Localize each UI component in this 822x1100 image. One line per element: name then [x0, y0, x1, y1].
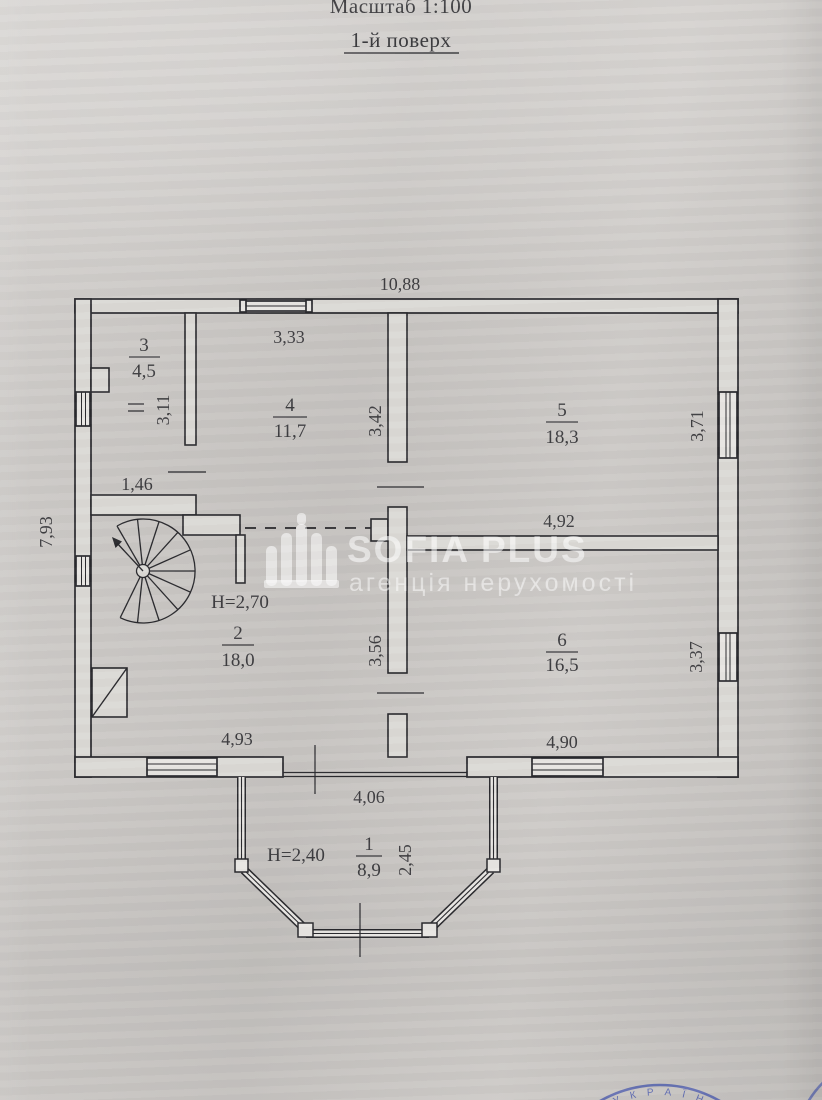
dim-room1-depth: 2,45 [395, 844, 415, 876]
room4-number: 4 [285, 395, 295, 416]
dim-room5-width: 4,92 [543, 511, 575, 531]
dim-room5-depth: 3,71 [687, 410, 707, 442]
window-left-room2 [76, 556, 90, 586]
room1-ceiling-height: H=2,40 [267, 845, 325, 866]
scanned-floor-plan-page: Масштаб 1:100 1-й поверх [0, 0, 822, 1100]
window-bottom-room6 [532, 758, 603, 776]
right-wall [718, 299, 738, 777]
wall-room3-bottom [91, 495, 196, 515]
dim-room3-width: 1,46 [121, 474, 153, 494]
dim-room4-depth: 3,42 [365, 405, 385, 437]
stove-icon [92, 668, 127, 717]
wall-stair-top [183, 515, 240, 535]
room1-area: 8,9 [357, 860, 381, 881]
room5-area: 18,3 [545, 427, 578, 448]
wall-stair-stub [236, 535, 245, 583]
dim-overall-height: 7,93 [36, 516, 56, 548]
stamp-seal-corner-icon [795, 1055, 822, 1100]
stamp-seal-icon: У К Р А Ї Н [540, 1085, 780, 1100]
window-top [240, 300, 312, 312]
wall-middle-lower [388, 714, 407, 757]
page-header: Масштаб 1:100 1-й поверх [330, 0, 473, 53]
dim-room4-width: 3,33 [273, 327, 305, 347]
wall-middle-upper [388, 313, 407, 462]
window-right-room5 [719, 392, 737, 458]
room2-ceiling-height: H=2,70 [211, 592, 269, 613]
scale-label: Масштаб 1:100 [330, 0, 473, 18]
room4-area: 11,7 [274, 421, 307, 442]
chimney-notch [91, 368, 109, 392]
room6-area: 16,5 [545, 655, 578, 676]
left-wall [75, 299, 91, 777]
watermark-brand: SOFIA PLUS [347, 529, 588, 570]
watermark-logo-icon [264, 513, 339, 588]
veranda-opening [283, 773, 467, 777]
dim-overall-width: 10,88 [380, 274, 421, 294]
dim-room6-depth: 3,37 [686, 641, 706, 673]
watermark: SOFIA PLUS агенція нерухомості [264, 513, 637, 597]
room6-number: 6 [557, 630, 567, 651]
floor-label: 1-й поверх [351, 28, 452, 52]
dim-room2-width: 4,93 [221, 729, 253, 749]
room1-number: 1 [364, 834, 374, 855]
dim-room3-depth: 3,11 [153, 395, 173, 426]
window-left-room3 [76, 392, 90, 426]
room3-area: 4,5 [132, 361, 156, 382]
room2-number: 2 [233, 623, 243, 644]
dim-room1-width: 4,06 [353, 787, 385, 807]
wall-room3-right [185, 313, 196, 445]
room3-number: 3 [139, 335, 149, 356]
dim-room6-width: 4,90 [546, 732, 578, 752]
room2-area: 18,0 [221, 650, 254, 671]
window-bottom-room2 [147, 758, 217, 776]
top-wall [75, 299, 738, 313]
window-right-room6 [719, 633, 737, 681]
dim-room2-depth: 3,56 [365, 635, 385, 667]
watermark-tagline: агенція нерухомості [349, 569, 637, 597]
room5-number: 5 [557, 400, 567, 421]
